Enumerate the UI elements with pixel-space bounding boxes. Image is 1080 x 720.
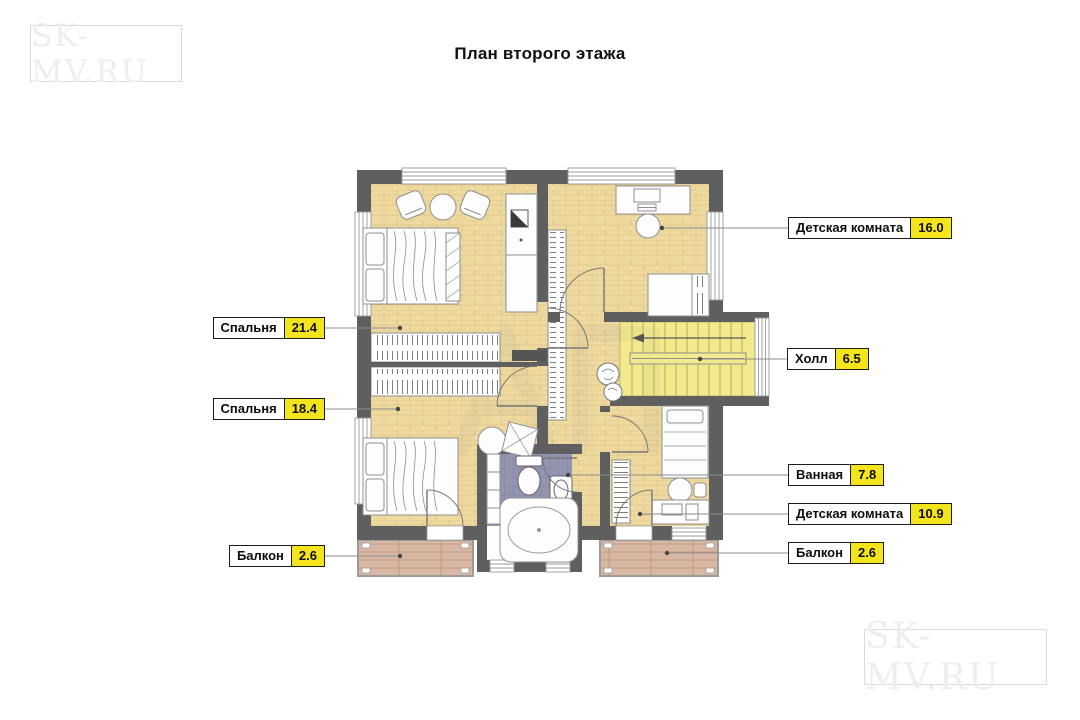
room-label-children-10: Детская комната10.9 <box>788 503 952 525</box>
room-name: Детская комната <box>789 504 910 524</box>
small-table <box>668 478 692 502</box>
page: SK-MV.RU SK-MV.RU План второго этажа <box>0 0 1080 720</box>
room-area: 2.6 <box>850 543 883 563</box>
room-label-hall: Холл6.5 <box>787 348 869 370</box>
room-name: Холл <box>788 349 835 369</box>
floor-plan <box>0 0 1080 720</box>
side-table <box>502 422 538 458</box>
room-name: Ванная <box>789 465 850 485</box>
room-area: 10.9 <box>910 504 950 524</box>
room-label-children-16: Детская комната16.0 <box>788 217 952 239</box>
wardrobe-1 <box>648 274 709 316</box>
room-label-bathroom: Ванная7.8 <box>788 464 884 486</box>
desk-chair <box>636 214 660 238</box>
room-area: 2.6 <box>291 546 324 566</box>
room-name: Балкон <box>789 543 850 563</box>
room-label-bedroom-18: Спальня18.4 <box>213 398 325 420</box>
chair <box>694 483 706 497</box>
bed-2 <box>363 438 458 515</box>
room-name: Спальня <box>214 399 284 419</box>
toilet <box>516 456 542 495</box>
room-name: Спальня <box>214 318 284 338</box>
room-area: 6.5 <box>835 349 868 369</box>
room-label-balcony-right: Балкон2.6 <box>788 542 884 564</box>
room-area: 21.4 <box>284 318 324 338</box>
round-table <box>430 194 456 220</box>
room-name: Детская комната <box>789 218 910 238</box>
bed-3 <box>662 406 708 478</box>
desk-1 <box>616 186 690 214</box>
room-area: 18.4 <box>284 399 324 419</box>
room-area: 7.8 <box>850 465 883 485</box>
room-area: 16.0 <box>910 218 950 238</box>
tv-cabinet <box>506 194 537 312</box>
room-label-balcony-left: Балкон2.6 <box>229 545 325 567</box>
bed-1 <box>363 228 460 304</box>
bathtub <box>500 498 578 562</box>
room-label-bedroom-21: Спальня21.4 <box>213 317 325 339</box>
bathroom-shelf <box>487 454 500 524</box>
desk-2 <box>652 500 709 524</box>
room-name: Балкон <box>230 546 291 566</box>
